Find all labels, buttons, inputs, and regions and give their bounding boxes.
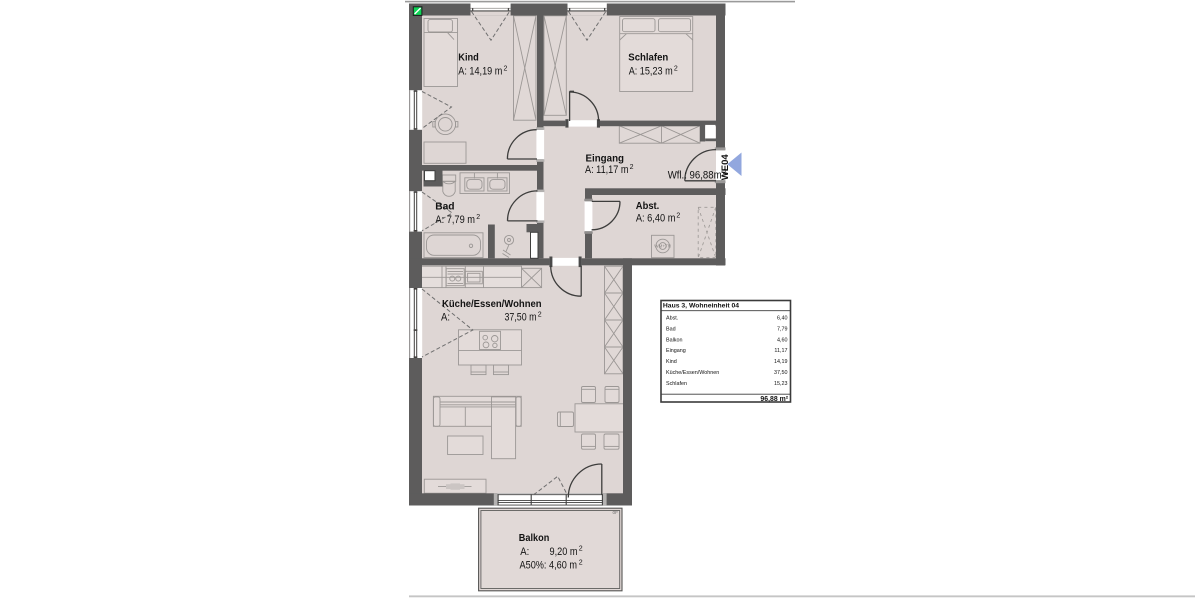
svg-text:A: 15,23 m: A: 15,23 m	[629, 66, 673, 78]
svg-text:WM+TR: WM+TR	[654, 244, 672, 249]
svg-text:A: 11,17 m: A: 11,17 m	[585, 164, 629, 176]
svg-text:14,19: 14,19	[774, 359, 788, 365]
svg-text:11,17: 11,17	[774, 348, 787, 354]
svg-text:2: 2	[538, 311, 542, 318]
svg-text:2: 2	[674, 65, 678, 72]
svg-text:A: 14,19 m: A: 14,19 m	[458, 66, 502, 78]
svg-text:7,79: 7,79	[777, 326, 788, 332]
svg-text:Eingang: Eingang	[666, 348, 686, 354]
svg-text:2: 2	[579, 559, 583, 566]
svg-text:Haus 3, Wohneinheit 04: Haus 3, Wohneinheit 04	[663, 303, 739, 310]
svg-text:Balkon: Balkon	[519, 533, 550, 544]
svg-text:37,50 m: 37,50 m	[505, 312, 537, 324]
svg-text:96,88 m²: 96,88 m²	[760, 396, 788, 403]
svg-text:2: 2	[723, 169, 727, 176]
svg-text:Schlafen: Schlafen	[628, 53, 668, 64]
svg-text:9,20 m: 9,20 m	[550, 546, 578, 558]
svg-text:Wfl.: 96,88m: Wfl.: 96,88m	[668, 169, 722, 181]
svg-text:Bad: Bad	[435, 202, 454, 213]
svg-text:A: 6,40 m: A: 6,40 m	[636, 213, 676, 225]
svg-text:A: 7,79 m: A: 7,79 m	[435, 214, 475, 226]
svg-text:2: 2	[504, 65, 508, 72]
svg-text:2: 2	[630, 164, 634, 171]
svg-text:Kind: Kind	[458, 53, 479, 64]
svg-text:Bad: Bad	[666, 326, 676, 332]
svg-text:4,60: 4,60	[777, 337, 788, 343]
svg-text:A:: A:	[520, 546, 529, 558]
svg-text:Abst.: Abst.	[636, 201, 660, 212]
svg-text:15,23: 15,23	[774, 381, 788, 387]
svg-text:2: 2	[579, 546, 583, 553]
svg-text:Eingang: Eingang	[586, 154, 625, 165]
svg-text:Küche/Essen/Wohnen: Küche/Essen/Wohnen	[666, 370, 719, 376]
svg-text:Kind: Kind	[666, 359, 677, 365]
svg-text:A:: A:	[441, 312, 450, 324]
svg-text:Schlafen: Schlafen	[666, 381, 687, 387]
svg-text:Abst.: Abst.	[666, 315, 678, 321]
svg-text:6,40: 6,40	[777, 315, 788, 321]
svg-text:2: 2	[476, 214, 480, 221]
svg-text:37,50: 37,50	[774, 370, 788, 376]
svg-text:2: 2	[676, 212, 680, 219]
svg-text:Küche/Essen/Wohnen: Küche/Essen/Wohnen	[442, 299, 542, 310]
svg-text:A50%: 4,60 m: A50%: 4,60 m	[520, 560, 578, 572]
svg-text:0F: 0F	[613, 510, 619, 516]
svg-text:Balkon: Balkon	[666, 337, 682, 343]
